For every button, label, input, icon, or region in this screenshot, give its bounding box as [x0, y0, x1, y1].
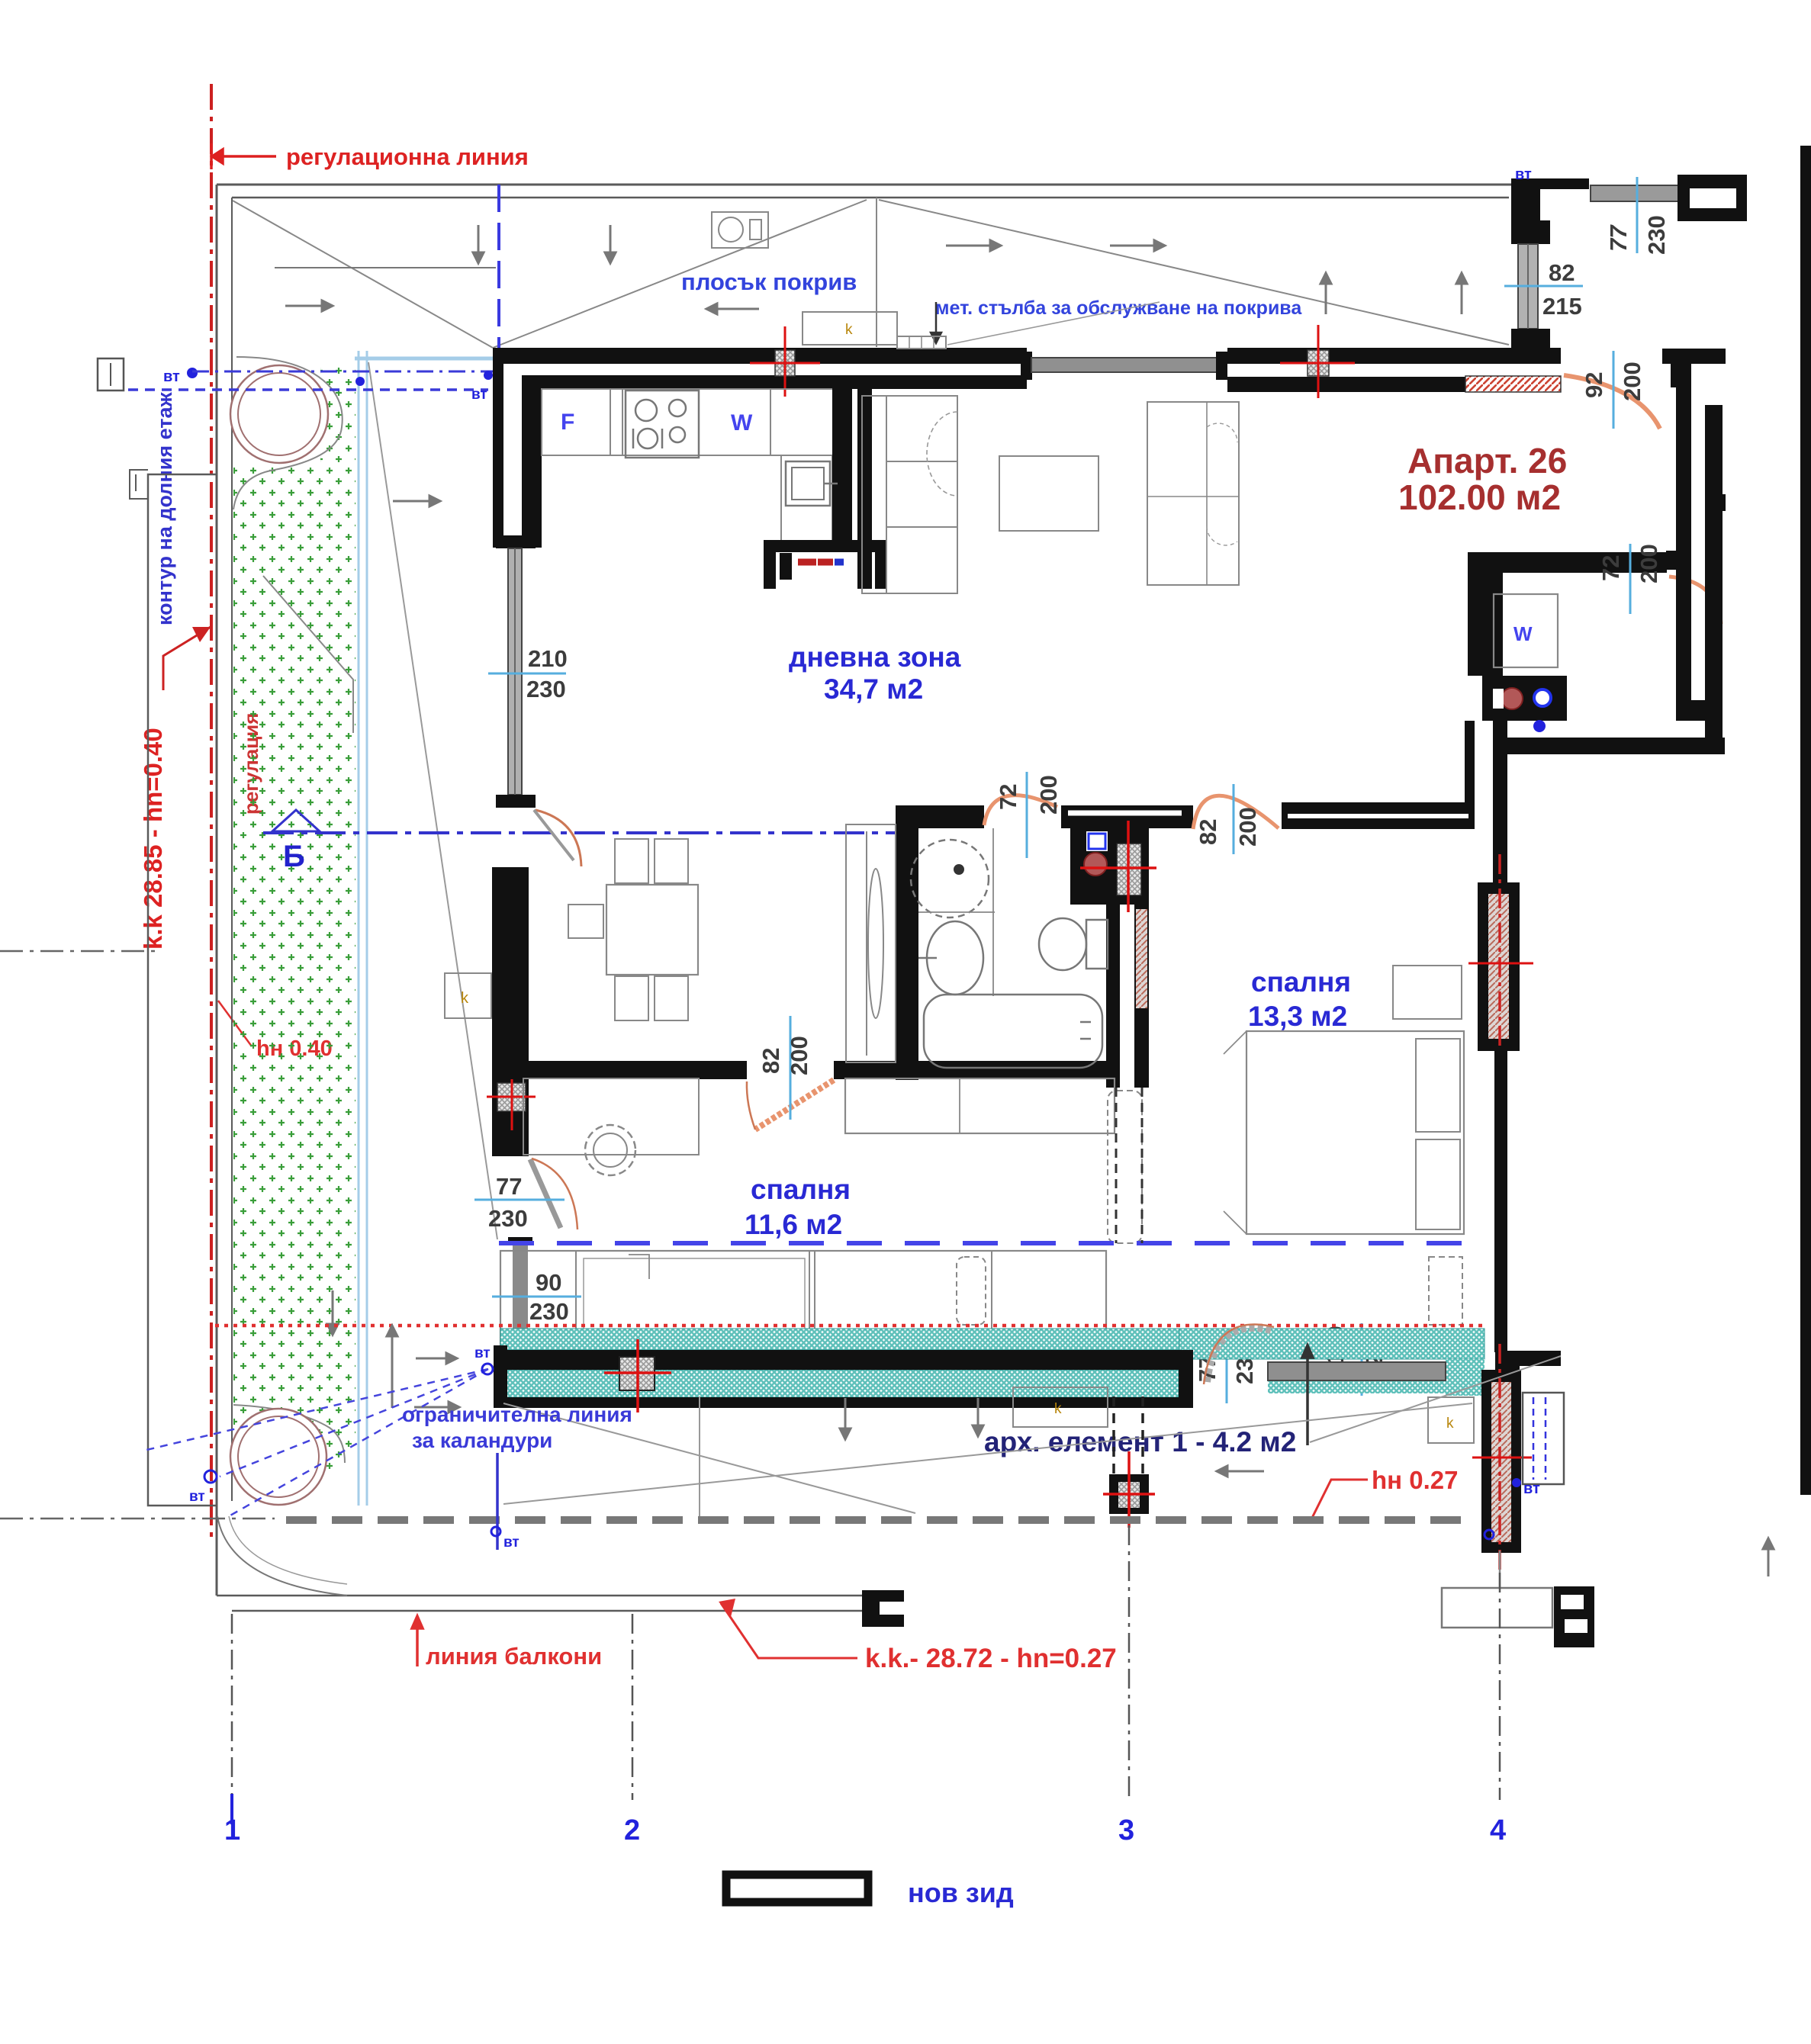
svg-text:72: 72 — [995, 784, 1021, 810]
svg-text:200: 200 — [1035, 775, 1062, 815]
svg-text:W: W — [731, 410, 753, 435]
svg-text:230: 230 — [529, 1298, 569, 1325]
svg-text:1: 1 — [224, 1814, 240, 1846]
svg-text:вт: вт — [503, 1535, 519, 1551]
svg-text:вт: вт — [474, 1345, 491, 1361]
svg-text:спалня: спалня — [1251, 966, 1351, 998]
svg-text:230: 230 — [1643, 215, 1670, 255]
svg-text:4: 4 — [1490, 1814, 1506, 1846]
svg-text:230: 230 — [488, 1205, 528, 1232]
svg-text:77: 77 — [496, 1173, 522, 1200]
svg-text:мет. стълба за обслужване на п: мет. стълба за обслужване на покрива — [935, 297, 1302, 319]
svg-text:ограничителна линия: ограничителна линия — [402, 1403, 632, 1426]
svg-text:215: 215 — [1542, 293, 1582, 320]
svg-text:13,3 м2: 13,3 м2 — [1248, 1001, 1347, 1032]
svg-text:82: 82 — [1195, 819, 1221, 845]
svg-text:вт: вт — [1515, 166, 1532, 183]
svg-text:k: k — [845, 322, 853, 338]
svg-text:дневна зона: дневна зона — [789, 641, 961, 673]
svg-text:плосък покрив: плосък покрив — [681, 268, 857, 295]
svg-text:92: 92 — [1581, 372, 1607, 398]
svg-text:вт: вт — [189, 1489, 205, 1505]
svg-text:нов зид: нов зид — [908, 1877, 1014, 1908]
svg-text:спалня: спалня — [751, 1174, 851, 1205]
svg-text:200: 200 — [1619, 362, 1645, 401]
svg-text:90: 90 — [536, 1269, 561, 1296]
svg-text:hн 0.27: hн 0.27 — [1372, 1466, 1459, 1494]
svg-text:k.k.- 28.72 - hn=0.27: k.k.- 28.72 - hn=0.27 — [865, 1644, 1117, 1673]
svg-text:Б: Б — [283, 840, 305, 873]
svg-text:регулационна линия: регулационна линия — [286, 143, 529, 170]
svg-text:82: 82 — [758, 1048, 784, 1074]
svg-text:k: k — [1054, 1401, 1062, 1417]
svg-text:11,6 м2: 11,6 м2 — [745, 1209, 842, 1240]
svg-text:3: 3 — [1118, 1814, 1134, 1846]
svg-text:72: 72 — [1597, 555, 1624, 581]
svg-text:200: 200 — [786, 1036, 812, 1075]
svg-text:200: 200 — [1234, 807, 1261, 847]
svg-text:W: W — [1513, 622, 1533, 645]
svg-text:k.k 28.85 - hn=0.40: k.k 28.85 - hn=0.40 — [139, 728, 167, 950]
svg-text:200: 200 — [1636, 544, 1662, 583]
svg-text:102.00 м2: 102.00 м2 — [1398, 477, 1561, 517]
svg-text:контур на долния етаж: контур на долния етаж — [153, 391, 176, 625]
svg-text:k: k — [1446, 1416, 1454, 1432]
svg-text:арх. елемент 1 - 4.2 м2: арх. елемент 1 - 4.2 м2 — [984, 1426, 1296, 1457]
svg-text:2: 2 — [624, 1814, 640, 1846]
svg-text:k: k — [461, 990, 469, 1007]
svg-text:82: 82 — [1549, 259, 1575, 286]
svg-text:вт: вт — [471, 387, 487, 403]
svg-text:линия балкони: линия балкони — [426, 1643, 602, 1670]
svg-text:77: 77 — [1605, 224, 1632, 252]
svg-text:вт: вт — [1523, 1480, 1540, 1497]
svg-text:210: 210 — [528, 645, 568, 672]
svg-text:34,7 м2: 34,7 м2 — [824, 673, 923, 705]
svg-text:вт: вт — [163, 368, 180, 385]
svg-text:F: F — [561, 410, 574, 435]
svg-text:Апарт. 26: Апарт. 26 — [1407, 441, 1567, 480]
svg-text:за каландури: за каландури — [412, 1429, 552, 1452]
svg-text:230: 230 — [526, 676, 566, 702]
